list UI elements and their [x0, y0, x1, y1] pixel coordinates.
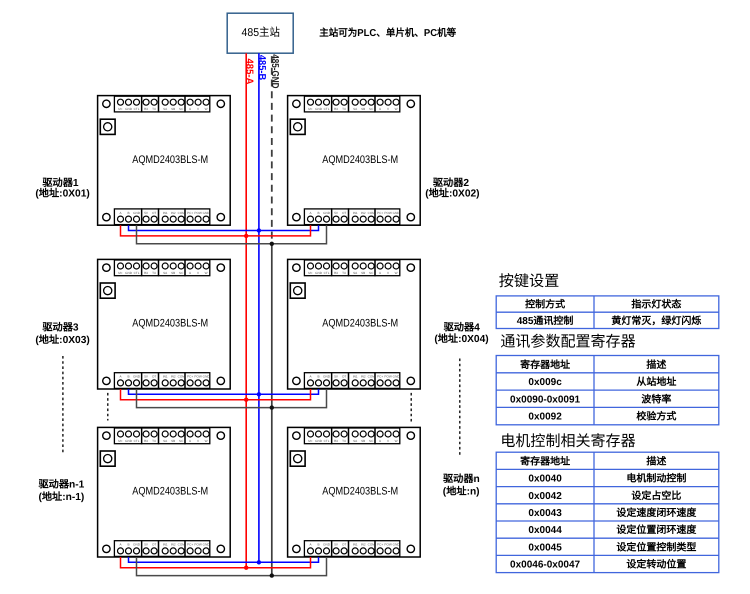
- svg-text:0x0092: 0x0092: [528, 412, 562, 423]
- svg-text:寄存器地址: 寄存器地址: [520, 455, 570, 467]
- svg-text:电机控制相关寄存器: 电机控制相关寄存器: [500, 433, 635, 450]
- svg-text:(地址:0X02): (地址:0X02): [425, 187, 479, 199]
- svg-text:驱动器4: 驱动器4: [444, 321, 481, 333]
- svg-text:(地址:0X04): (地址:0X04): [434, 333, 488, 345]
- svg-text:设定位置闭环速度: 设定位置闭环速度: [616, 524, 697, 536]
- svg-text:0x0043: 0x0043: [528, 508, 562, 519]
- svg-text:设定转动位置: 设定转动位置: [626, 559, 686, 571]
- svg-text:485-A: 485-A: [243, 59, 254, 85]
- svg-text:0x0046-0x0047: 0x0046-0x0047: [510, 560, 581, 571]
- svg-text:校验方式: 校验方式: [636, 411, 676, 423]
- svg-text:控制方式: 控制方式: [525, 299, 565, 311]
- svg-text:驱动器n-1: 驱动器n-1: [38, 478, 84, 490]
- svg-text:485-B: 485-B: [256, 55, 267, 80]
- svg-text:指示灯状态: 指示灯状态: [631, 299, 681, 311]
- svg-text:从站地址: 从站地址: [636, 376, 676, 388]
- svg-text:(地址:n-1): (地址:n-1): [38, 491, 84, 503]
- svg-text:设定速度闭环速度: 设定速度闭环速度: [616, 507, 697, 519]
- svg-text:485主站: 485主站: [242, 26, 281, 39]
- svg-text:0x0045: 0x0045: [528, 542, 562, 553]
- svg-text:驱动器1: 驱动器1: [42, 177, 79, 189]
- svg-text:描述: 描述: [646, 455, 666, 467]
- svg-text:寄存器地址: 寄存器地址: [520, 359, 570, 371]
- svg-text:0x0042: 0x0042: [528, 491, 562, 502]
- svg-text:驱动器n: 驱动器n: [443, 473, 480, 485]
- svg-text:(地址:0X01): (地址:0X01): [35, 187, 89, 199]
- svg-text:驱动器2: 驱动器2: [433, 177, 470, 189]
- svg-text:设定位置控制类型: 设定位置控制类型: [616, 541, 696, 553]
- svg-text:0x0044: 0x0044: [528, 525, 562, 536]
- svg-text:485-GND: 485-GND: [269, 54, 280, 88]
- svg-text:驱动器3: 驱动器3: [42, 321, 79, 333]
- svg-text:通讯参数配置寄存器: 通讯参数配置寄存器: [500, 333, 635, 350]
- svg-text:设定占空比: 设定占空比: [631, 490, 681, 502]
- svg-text:0x009c: 0x009c: [528, 377, 562, 388]
- svg-text:黄灯常灭，绿灯闪烁: 黄灯常灭，绿灯闪烁: [611, 315, 701, 327]
- svg-text:电机制动控制: 电机制动控制: [626, 473, 686, 485]
- svg-text:(地址:n): (地址:n): [443, 486, 480, 498]
- svg-text:0x0040: 0x0040: [528, 474, 562, 485]
- svg-text:按键设置: 按键设置: [499, 273, 560, 290]
- svg-text:(地址:0X03): (地址:0X03): [35, 334, 89, 346]
- svg-text:波特率: 波特率: [641, 393, 671, 405]
- svg-text:485通讯控制: 485通讯控制: [517, 315, 574, 327]
- svg-text:主站可为PLC、单片机、PC机等: 主站可为PLC、单片机、PC机等: [319, 27, 456, 39]
- svg-text:描述: 描述: [646, 359, 666, 371]
- svg-text:0x0090-0x0091: 0x0090-0x0091: [510, 394, 581, 405]
